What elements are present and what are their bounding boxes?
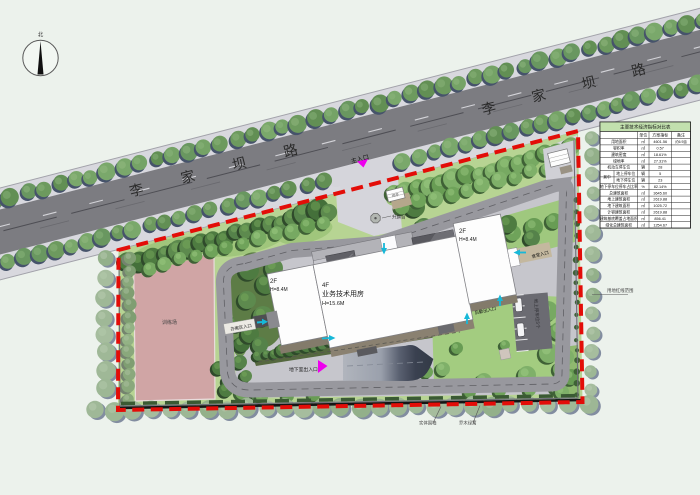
svg-text:业务技术用房: 业务技术用房 — [322, 289, 364, 298]
svg-text:3645.60: 3645.60 — [653, 191, 667, 195]
svg-text:方案指标: 方案指标 — [652, 132, 668, 138]
svg-text:训练场: 训练场 — [162, 319, 177, 326]
svg-text:辆: 辆 — [641, 171, 645, 176]
svg-text:㎡: ㎡ — [641, 210, 645, 215]
svg-text:H=8.4M: H=8.4M — [270, 287, 288, 293]
svg-text:2F: 2F — [459, 229, 466, 235]
svg-text:4601.56: 4601.56 — [653, 140, 667, 144]
svg-text:地下停车位: 地下停车位 — [616, 178, 635, 183]
svg-text:辆: 辆 — [641, 165, 645, 170]
svg-text:约6.9亩: 约6.9亩 — [675, 139, 687, 144]
svg-text:北: 北 — [38, 31, 44, 39]
svg-text:建筑基底覆盖占地面积: 建筑基底覆盖占地面积 — [600, 216, 638, 221]
svg-text:%: % — [642, 185, 646, 189]
svg-text:地下建筑面积: 地下建筑面积 — [607, 203, 630, 208]
svg-text:备注: 备注 — [677, 132, 685, 138]
svg-text:用地面积: 用地面积 — [611, 139, 626, 144]
svg-text:㎡: ㎡ — [641, 216, 645, 221]
svg-text:升旗台: 升旗台 — [392, 214, 406, 221]
svg-text:856.41: 856.41 — [654, 217, 666, 221]
svg-text:82.14%: 82.14% — [654, 185, 668, 189]
svg-text:1025.72: 1025.72 — [653, 204, 667, 208]
svg-text:地下停车位停车占比率: 地下停车位停车占比率 — [600, 184, 638, 189]
svg-text:㎡: ㎡ — [641, 190, 645, 195]
svg-text:辆: 辆 — [641, 178, 645, 183]
svg-text:㎡: ㎡ — [641, 197, 645, 202]
svg-text:H=15.6M: H=15.6M — [322, 301, 345, 307]
svg-text:㎡: ㎡ — [641, 222, 645, 227]
svg-text:2619.88: 2619.88 — [653, 211, 667, 215]
svg-text:容积率: 容积率 — [613, 146, 625, 151]
svg-text:绿化总建筑面积: 绿化总建筑面积 — [606, 222, 633, 227]
svg-text:其中: 其中 — [603, 175, 611, 180]
svg-text:2F: 2F — [270, 279, 277, 285]
svg-text:㎡: ㎡ — [641, 158, 645, 163]
svg-text:28: 28 — [658, 166, 662, 170]
svg-text:㎡: ㎡ — [641, 203, 645, 208]
svg-text:绿地率: 绿地率 — [613, 158, 625, 163]
svg-text:总建筑面积: 总建筑面积 — [609, 190, 628, 195]
svg-text:乔木绿篱: 乔木绿篱 — [459, 420, 477, 427]
svg-text:地下室出入口: 地下室出入口 — [289, 366, 318, 373]
svg-text:1254.67: 1254.67 — [653, 223, 667, 227]
svg-text:地上停车位: 地上停车位 — [616, 171, 635, 176]
svg-text:2619.88: 2619.88 — [653, 198, 667, 202]
svg-text:主要技术经济指标对比表: 主要技术经济指标对比表 — [620, 124, 671, 131]
svg-text:㎡: ㎡ — [641, 139, 645, 144]
svg-text:18.61%: 18.61% — [654, 153, 668, 157]
svg-text:建筑密度: 建筑密度 — [611, 152, 626, 157]
svg-text:23: 23 — [658, 179, 662, 183]
svg-text:用地红线范围: 用地红线范围 — [607, 287, 634, 294]
svg-text:㎡: ㎡ — [641, 146, 645, 151]
svg-text:0.57: 0.57 — [657, 147, 664, 151]
svg-text:单位: 单位 — [639, 132, 647, 138]
svg-text:机动车停车位: 机动车停车位 — [607, 165, 630, 170]
svg-text:5: 5 — [659, 172, 661, 176]
svg-text:㎡: ㎡ — [641, 152, 645, 157]
svg-text:4F: 4F — [322, 283, 329, 289]
svg-text:27.31%: 27.31% — [654, 159, 668, 163]
svg-text:计容建筑面积: 计容建筑面积 — [607, 210, 630, 215]
svg-text:实体围墙: 实体围墙 — [419, 420, 437, 427]
svg-text:地上建筑面积: 地上建筑面积 — [607, 197, 630, 202]
svg-text:H=8.4M: H=8.4M — [459, 237, 477, 243]
